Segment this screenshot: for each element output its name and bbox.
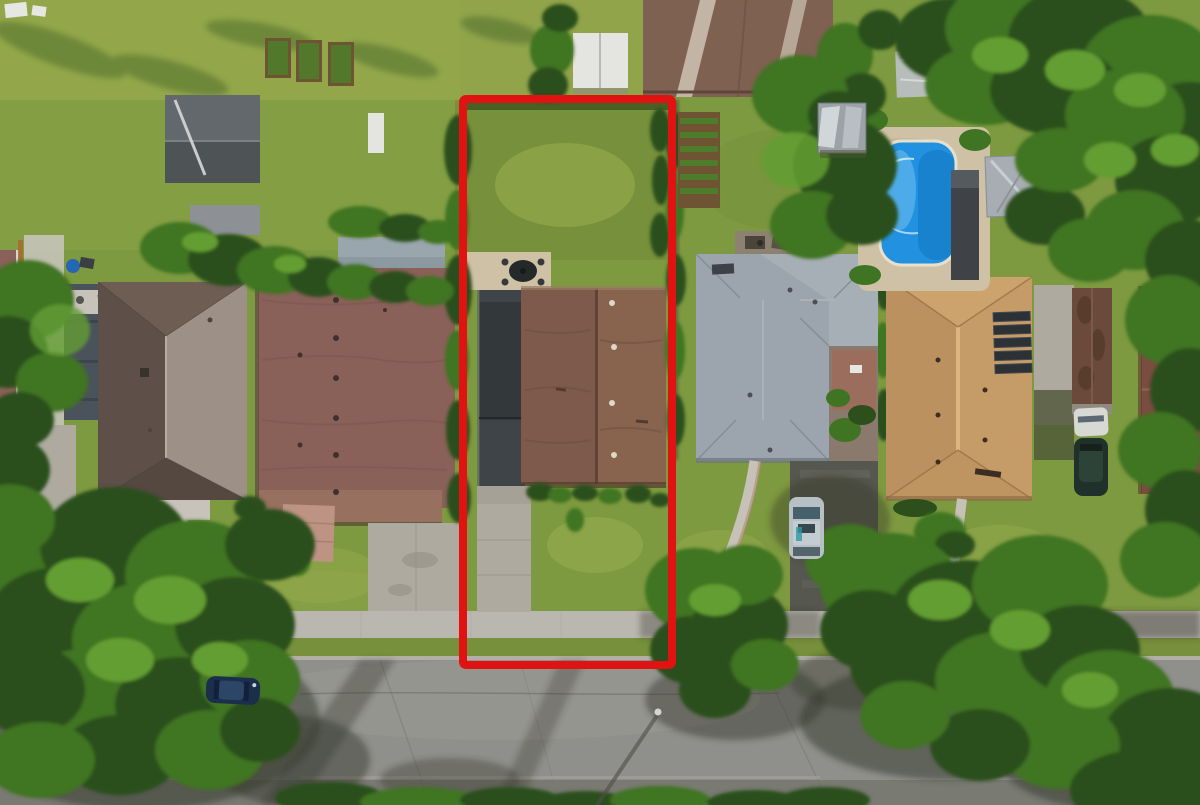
white-playhouse — [368, 113, 384, 153]
metal-gazebo — [818, 103, 866, 158]
courtyard — [826, 346, 878, 461]
blue-bin — [66, 259, 80, 273]
white-shed — [573, 33, 628, 94]
parked-car-driveway — [789, 497, 824, 559]
brown-garage — [1072, 288, 1112, 404]
subject-driveway — [477, 486, 531, 612]
dark-suv — [1074, 438, 1108, 496]
aerial-photo — [0, 0, 1200, 805]
subject-garage — [477, 290, 525, 486]
skylight — [712, 263, 734, 274]
white-car — [1073, 407, 1108, 437]
parked-car-street — [205, 676, 260, 706]
chimney — [140, 368, 149, 377]
solar-panels — [993, 311, 1032, 373]
subject-house-roof — [521, 286, 666, 488]
